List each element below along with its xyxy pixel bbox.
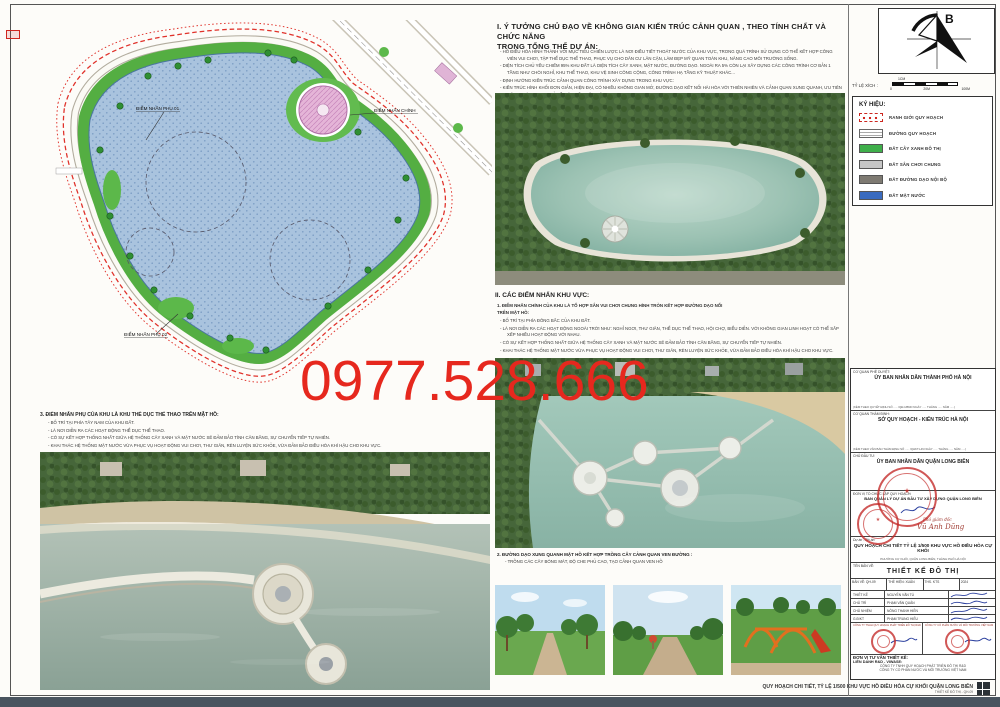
footer: QUY HOẠCH CHI TIẾT, TỶ LỆ 1/500 KHU VỰC … xyxy=(560,681,990,696)
gray-swatch xyxy=(859,160,883,169)
staff-role: G.Đ/KT xyxy=(851,615,885,622)
legend-item-path: ĐẤT ĐƯỜNG DẠO NỘI BỘ xyxy=(859,175,986,184)
photos-heading: 2. ĐƯỜNG DẠO XUNG QUANH MẶT HỒ KẾT HỢP T… xyxy=(497,552,692,557)
section2-intro: 1. ĐIỂM NHẤN CHÍNH CỦA KHU LÀ TỔ HỢP SÂN… xyxy=(497,303,842,316)
consultant-section: ĐƠN VỊ TƯ VẤN THIẾT KẾ: LIÊN DANH R&D - … xyxy=(851,655,995,672)
fountain-plaza xyxy=(602,216,628,242)
staff-name: PHẠM TRUNG HIẾU xyxy=(885,615,949,622)
bottom-scan-bar xyxy=(0,697,1000,707)
north-arrow-box: B xyxy=(878,8,995,74)
bullet: LÀ NƠI DIỄN RA CÁC HOẠT ĐỘNG THỂ DỤC THỂ… xyxy=(48,428,468,435)
appraise-org: SỞ QUY HOẠCH - KIẾN TRÚC HÀ NỘI xyxy=(851,417,995,423)
scale-cm-label: 1CM xyxy=(898,77,905,81)
section3-bullets: BỐ TRÍ TẠI PHÍA TÂY NAM CỦA KHU ĐẤT. LÀ … xyxy=(48,420,468,451)
darkgray-swatch xyxy=(859,175,883,184)
staff-name: PHẠM VĂN QUÂN xyxy=(885,599,949,606)
legend-item-playground: ĐẤT SÂN CHƠI CHUNG xyxy=(859,160,986,169)
investor-org: ỦY BAN NHÂN DÂN QUẬN LONG BIÊN xyxy=(851,459,995,465)
section2-intro-line2: TRÊN MẶT HỒ: xyxy=(497,310,842,317)
bullet: BỐ TRÍ TẠI PHÍA TÂY NAM CỦA KHU ĐẤT. xyxy=(48,420,468,427)
scale-tick-20m: 20M xyxy=(923,87,930,91)
bullet: CÓ SỰ KẾT HỢP THỐNG NHẤT GIỮA HỆ THỐNG C… xyxy=(48,435,468,442)
section1-heading-line1: I. Ý TƯỞNG CHỦ ĐẠO VỀ KHÔNG GIAN KIẾN TR… xyxy=(497,22,843,42)
photo-playground xyxy=(731,585,841,675)
legend-label: ĐẤT MẶT NƯỚC xyxy=(889,193,925,198)
section2-intro-line1: 1. ĐIỂM NHẤN CHÍNH CỦA KHU LÀ TỔ HỢP SÂN… xyxy=(497,303,842,310)
bullet: KHAI THÁC HỆ THỐNG MẶT NƯỚC VỪA PHỤC VỤ … xyxy=(48,443,468,450)
footer-title: QUY HOẠCH CHI TIẾT, TỶ LỆ 1/500 KHU VỰC … xyxy=(762,684,973,690)
bullet: LÀ NƠI DIỄN RA CÁC HOẠT ĐỘNG NGOÀI TRỜI … xyxy=(500,326,843,339)
legend-label: ĐẤT SÂN CHƠI CHUNG xyxy=(889,162,941,167)
staff-name: NGUYỄN VĂN TÚ xyxy=(885,591,949,598)
bullet: DIỆN TÍCH CHỦ YẾU CHIẾM 95% KHU ĐẤT LÀ D… xyxy=(500,63,843,76)
road-label-box xyxy=(56,168,82,174)
planning-sheet: ĐIỂM NHẤN PHỤ 01 ĐIỂM NHẤN CHÍNH ĐIỂM NH… xyxy=(0,0,1000,707)
blue-swatch xyxy=(859,191,883,200)
staff-signature xyxy=(949,615,995,622)
label-diem-nhan-chinh: ĐIỂM NHẤN CHÍNH xyxy=(374,107,416,113)
photos-bullet-list: TRỒNG CÁC CÂY BÓNG MÁT, ĐỘ CHE PHỦ CAO, … xyxy=(505,559,835,567)
meta-row: BẢN VẼ: QH-09 THỂ HIỆN: XUÂN THS. KTS 20… xyxy=(851,579,995,591)
photo-strip xyxy=(495,585,845,675)
column-divider xyxy=(848,4,849,696)
render-aerial-lake xyxy=(495,93,845,285)
approve-note: (KÈM THEO QUYẾT ĐỊNH SỐ ..... /QĐ-UBND N… xyxy=(853,405,993,409)
photo-park-path-2 xyxy=(613,585,723,675)
approve-org: ỦY BAN NHÂN DÂN THÀNH PHỐ HÀ NỘI xyxy=(851,375,995,381)
watermark-phone: 0977.528.666 xyxy=(300,348,720,414)
scale-bar xyxy=(892,82,958,86)
scale-bar-row: TỶ LỆ XÍCH : 1CM 0 20M 100M xyxy=(852,77,994,94)
company-stamp-right xyxy=(945,629,970,654)
legend-item-boundary: RANH GIỚI QUY HOẠCH xyxy=(859,113,986,122)
project-location: PHƯỜNG CỰ KHỐI, QUẬN LONG BIÊN, THÀNH PH… xyxy=(853,557,993,561)
bullet: TRỒNG CÁC CÂY BÓNG MÁT, ĐỘ CHE PHỦ CAO, … xyxy=(505,559,835,566)
green-swatch xyxy=(859,144,883,153)
scale-tick-0: 0 xyxy=(890,87,892,91)
meta-cell: THỂ HIỆN: XUÂN xyxy=(887,579,923,590)
title-block: CƠ QUAN PHÊ DUYỆT: ỦY BAN NHÂN DÂN THÀNH… xyxy=(850,368,996,680)
appraisal-section: CƠ QUAN THẨM ĐỊNH: SỞ QUY HOẠCH - KIẾN T… xyxy=(851,411,995,453)
staff-signature xyxy=(949,591,995,598)
meta-cell: 2024 xyxy=(960,579,995,590)
staff-role: CHỦ TRÌ xyxy=(851,599,885,606)
meta-cell: THS. KTS xyxy=(924,579,960,590)
road-swatch xyxy=(859,129,883,138)
stamp-caption-right: CÔNG TY CỔ PHẦN NƯỚC VÀ MÔI TRƯỜNG VIỆT … xyxy=(924,624,994,627)
stamp-caption-left: CÔNG TY TNHH QUY HOẠCH PHÁT TRIỂN ĐÔ THỊ… xyxy=(852,624,922,627)
corner-red-mark xyxy=(6,30,20,39)
bullet: CÓ SỰ KẾT HỢP THỐNG NHẤT GIỮA HỆ THỐNG C… xyxy=(500,340,843,347)
appraise-note: (KÈM THEO VĂN BẢN THẨM ĐỊNH SỐ ..... /QH… xyxy=(853,447,993,451)
legend-title: KÝ HIỆU: xyxy=(859,102,986,108)
scale-ticks: 0 20M 100M xyxy=(890,87,970,91)
playground-circle xyxy=(286,78,360,142)
company-stamps-section: CÔNG TY TNHH QUY HOẠCH PHÁT TRIỂN ĐÔ THỊ… xyxy=(851,623,995,655)
legend-item-green: ĐẤT CÂY XANH ĐÔ THỊ xyxy=(859,144,986,153)
legend-item-road: ĐƯỜNG QUY HOẠCH xyxy=(859,129,986,138)
bullet: HỒ ĐIỀU HÒA HÌNH THÀNH VỚI MỤC TIÊU CHIẾ… xyxy=(500,49,843,62)
legend: KÝ HIỆU: RANH GIỚI QUY HOẠCH ĐƯỜNG QUY H… xyxy=(852,96,993,206)
staff-signature xyxy=(949,599,995,606)
bullet: BỐ TRÍ TẠI PHÍA ĐÔNG BẮC CỦA KHU ĐẤT. xyxy=(500,318,843,325)
legend-label: ĐẤT CÂY XANH ĐÔ THỊ xyxy=(889,146,941,151)
bullet: ĐỊNH HƯỚNG KIẾN TRÚC CẢNH QUAN CÔNG TRÌN… xyxy=(500,78,843,85)
staff-row: CHỦ TRÌ PHẠM VĂN QUÂN xyxy=(851,599,995,607)
boundary-swatch xyxy=(859,113,883,122)
scale-caption: TỶ LỆ XÍCH : xyxy=(852,83,878,88)
staff-row: G.Đ/KT PHẠM TRUNG HIẾU xyxy=(851,615,995,623)
legend-label: ĐƯỜNG QUY HOẠCH xyxy=(889,131,936,136)
company-stamp-left xyxy=(871,629,896,654)
staff-row: CHỦ NHIỆM NÔNG THANH HIỀN xyxy=(851,607,995,615)
north-label: B xyxy=(945,12,954,26)
footer-text: QUY HOẠCH CHI TIẾT, TỶ LỆ 1/500 KHU VỰC … xyxy=(762,684,973,694)
staff-signature xyxy=(949,607,995,614)
north-arrow-icon: B xyxy=(879,9,994,73)
legend-label: RANH GIỚI QUY HOẠCH xyxy=(889,115,943,120)
footer-stamp-icon xyxy=(977,682,990,695)
render1-svg xyxy=(495,93,845,285)
label-diem-nhan-phu-02: ĐIỂM NHẤN PHỤ 02 xyxy=(124,331,168,337)
staff-role: THIẾT KẾ xyxy=(851,591,885,598)
approve-label: CƠ QUAN PHÊ DUYỆT: xyxy=(853,370,890,374)
meta-cell: BẢN VẼ: QH-09 xyxy=(851,579,887,590)
render-pier-perspective xyxy=(40,452,490,690)
section2-heading: II. CÁC ĐIỂM NHẤN KHU VỰC: xyxy=(495,292,589,299)
legend-label: ĐẤT ĐƯỜNG DẠO NỘI BỘ xyxy=(889,177,947,182)
photo-park-path-1 xyxy=(495,585,605,675)
org-stamp: ★ xyxy=(857,503,899,545)
sheetname-section: TÊN BẢN VẼ: THIẾT KẾ ĐÔ THỊ xyxy=(851,563,995,579)
sheet-name: THIẾT KẾ ĐÔ THỊ xyxy=(851,568,995,575)
staff-role: CHỦ NHIỆM xyxy=(851,607,885,614)
appraise-label: CƠ QUAN THẨM ĐỊNH: xyxy=(853,412,890,416)
scale-tick-100m: 100M xyxy=(962,87,970,91)
investor-label: CHỦ ĐẦU TƯ: xyxy=(853,454,875,458)
staff-name: NÔNG THANH HIỀN xyxy=(885,607,949,614)
consultant-co2: CÔNG TY CỔ PHẦN NƯỚC VÀ MÔI TRƯỜNG VIỆT … xyxy=(851,668,995,672)
section1-heading: I. Ý TƯỞNG CHỦ ĐẠO VỀ KHÔNG GIAN KIẾN TR… xyxy=(497,22,843,52)
legend-item-water: ĐẤT MẶT NƯỚC xyxy=(859,191,986,200)
footer-subtitle: THIẾT KẾ ĐÔ THỊ - QH-09 xyxy=(762,690,973,694)
deputy-signature: Vũ Anh Dũng xyxy=(917,523,964,531)
label-diem-nhan-phu-01: ĐIỂM NHẤN PHỤ 01 xyxy=(136,105,180,111)
investor-section: CHỦ ĐẦU TƯ: ỦY BAN NHÂN DÂN QUẬN LONG BI… xyxy=(851,453,995,491)
approval-section: CƠ QUAN PHÊ DUYỆT: ỦY BAN NHÂN DÂN THÀNH… xyxy=(851,369,995,411)
render3-svg xyxy=(40,452,490,690)
staff-row: THIẾT KẾ NGUYỄN VĂN TÚ xyxy=(851,591,995,599)
